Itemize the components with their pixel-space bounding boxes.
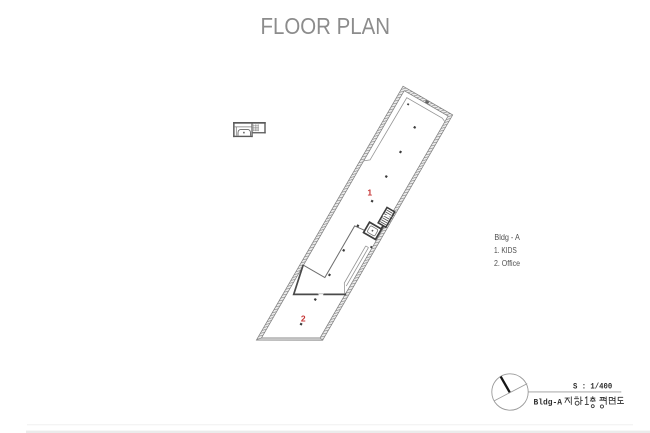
svg-text:1. KIDS: 1. KIDS [494,246,517,255]
svg-text:2. Office: 2. Office [494,259,520,268]
svg-text:2: 2 [301,314,306,324]
svg-text:Bldg - A: Bldg - A [494,233,520,242]
svg-text:1: 1 [367,187,372,197]
svg-text:S : 1/400: S : 1/400 [573,383,612,392]
svg-text:FLOOR PLAN: FLOOR PLAN [261,13,391,39]
svg-text:Bldg-A: Bldg-A [534,397,563,407]
